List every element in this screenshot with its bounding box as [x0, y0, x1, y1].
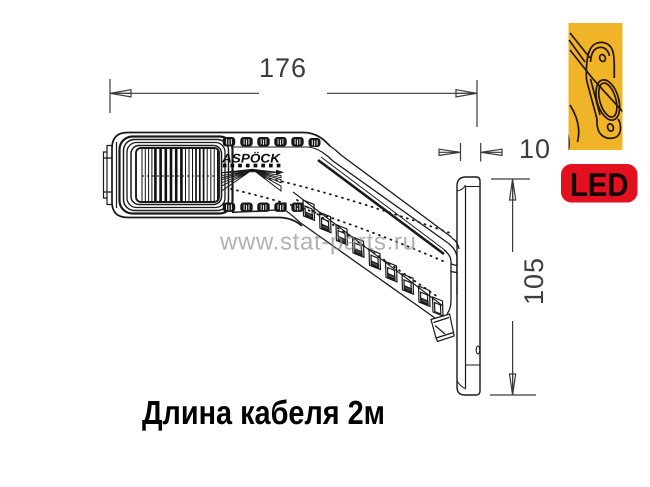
- svg-text:10: 10: [519, 134, 551, 164]
- svg-text:www.stat-parts.ru: www.stat-parts.ru: [219, 229, 416, 256]
- svg-text:LED: LED: [570, 166, 629, 203]
- svg-text:176: 176: [259, 53, 307, 83]
- svg-text:Длина кабеля 2м: Длина кабеля 2м: [142, 395, 385, 432]
- svg-text:105: 105: [519, 257, 549, 305]
- svg-text:ASPÖCK: ASPÖCK: [221, 152, 281, 166]
